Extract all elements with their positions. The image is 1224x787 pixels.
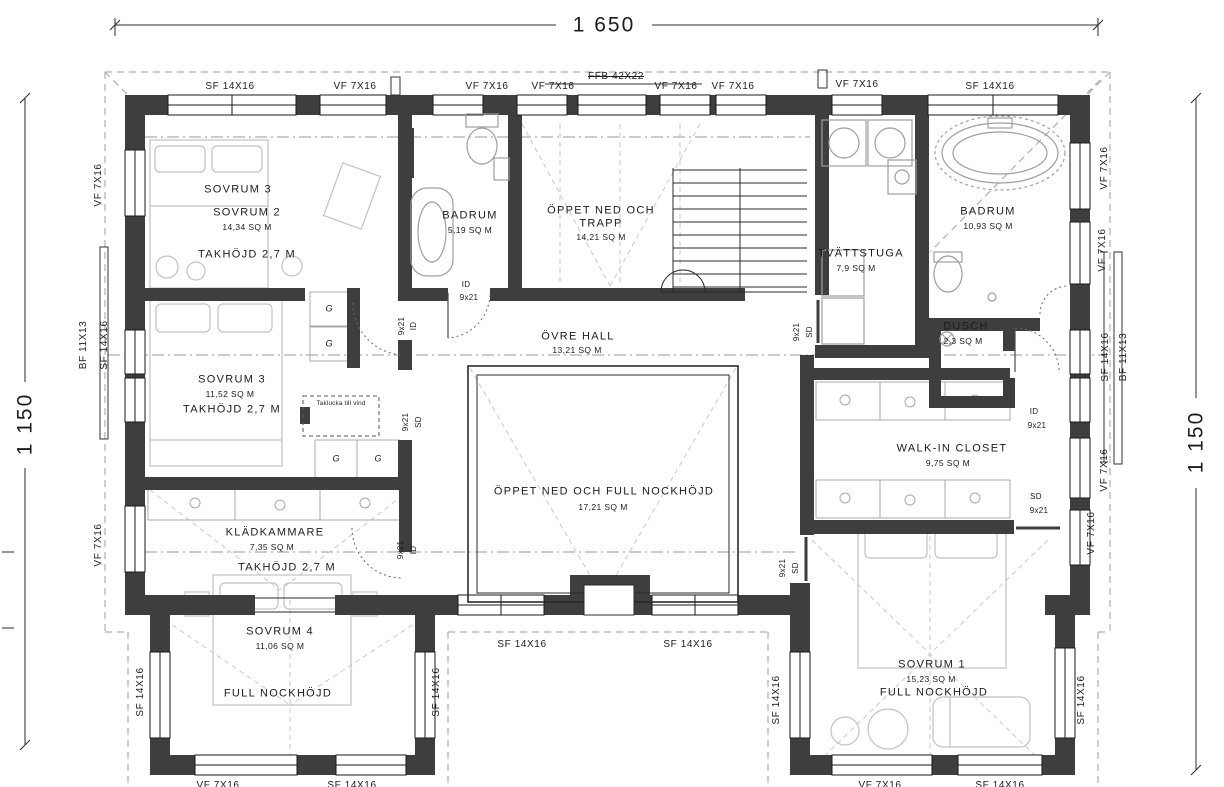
room-label-tvattstuga: TVÄTTSTUGA [818,249,904,260]
room-area-kladkammare: 7,35 SQ M [250,543,294,552]
window-label-vf: VF 7X16 [1100,146,1110,189]
door-label-id: ID [410,546,418,555]
room-area-trapp: 14,21 SQ M [576,233,625,242]
door-size: 9x21 [460,294,479,302]
room-label-walkin: WALK-IN CLOSET [897,444,1008,455]
room-area-walkin: 9,75 SQ M [926,459,970,468]
window-label-sf: SF 14X16 [1101,332,1111,381]
room-label-sovrum3: SOVRUM 3 [198,375,266,386]
room-area-oppet-ned: 17,21 SQ M [578,503,627,512]
window-label-vf: VF 7X16 [835,80,878,90]
door-size: 9x21 [397,541,405,560]
window-label-vf: VF 7X16 [94,523,104,566]
room-area-sovrum4: 11,06 SQ M [256,642,305,651]
room-area-badrum-right: 10,93 SQ M [963,222,1012,231]
room-ceiling-kladkammare: TAKHÖJD 2,7 M [238,563,336,574]
dimension-right: 1 150 [1186,411,1207,474]
window-label-vf: VF 7X16 [465,82,508,92]
room-label-trapp-1: ÖPPET NED OCH [547,206,655,217]
door-label-sd: SD [415,416,423,428]
window-label-sf: SF 14X16 [772,675,782,724]
door-label-sd: SD [1030,493,1042,501]
window-label-bf: BF 11X13 [1119,333,1129,382]
door-size: 9x21 [1028,422,1047,430]
door-size: 9x21 [1030,507,1049,515]
window-label-vf: VF 7X16 [196,781,239,787]
wardrobe-label-g: G [332,455,339,464]
door-label-id: ID [462,281,471,289]
dimension-left: 1 150 [15,393,36,456]
door-label-id: ID [410,322,418,331]
room-label-ovre-hall: ÖVRE HALL [541,332,614,343]
room-label-dusch: DUSCH [943,322,989,333]
door-label-sd: SD [806,326,814,338]
door-label-id: ID [1030,408,1039,416]
window-label-sf: SF 14X16 [205,82,254,92]
window-label-vf: VF 7X16 [1087,511,1097,554]
room-height-sovrum1: FULL NOCKHÖJD [880,688,988,699]
room-area-ovre-hall: 13,21 SQ M [552,346,601,355]
window-label-bf: BF 11X13 [79,321,89,370]
door-size: 9x21 [398,317,406,336]
window-label-sf: SF 14X16 [663,640,712,650]
room-label-badrum-right: BADRUM [960,207,1015,218]
window-label-sf: SF 14X16 [100,320,110,369]
dimension-lines [2,18,1201,775]
room-label-trapp-2: TRAPP [579,219,622,230]
room-area-sovrum1: 15,23 SQ M [906,675,955,684]
window-label-vf: VF 7X16 [1100,448,1110,491]
window-label-vf: VF 7X16 [94,163,104,206]
window-label-vf: VF 7X16 [711,82,754,92]
room-area-sovrum2: 14,34 SQ M [222,223,271,232]
door-size: 9x21 [793,323,801,342]
room-label-sovrum2-alt: SOVRUM 3 [204,185,272,196]
window-label-sf: SF 14X16 [136,667,146,716]
window-label-sf: SF 14X16 [965,82,1014,92]
window-label-sf: SF 14X16 [432,667,442,716]
room-area-badrum-left: 5,19 SQ M [448,226,492,235]
window-label-ffb: FFB 42X22 [588,72,644,82]
door-label-sd: SD [792,562,800,574]
door-size: 9x21 [779,559,787,578]
room-label-kladkammare: KLÄDKAMMARE [226,528,325,539]
staircase [661,168,807,292]
room-ceiling-sovrum2: TAKHÖJD 2,7 M [198,250,296,261]
room-label-oppet-ned: ÖPPET NED OCH FULL NOCKHÖJD [494,487,714,498]
room-area-sovrum3: 11,52 SQ M [206,390,255,399]
room-label-sovrum1: SOVRUM 1 [898,660,966,671]
room-label-sovrum4: SOVRUM 4 [246,627,314,638]
window-label-vf: VF 7X16 [654,82,697,92]
window-label-vf: VF 7X16 [531,82,574,92]
room-label-sovrum2: SOVRUM 2 [213,208,281,219]
wardrobe-label-g: G [374,455,381,464]
window-label-sf: SF 14X16 [975,781,1024,787]
window-label-sf: SF 14X16 [327,781,376,787]
window-label-vf: VF 7X16 [858,781,901,787]
room-height-sovrum4: FULL NOCKHÖJD [224,689,332,700]
floor-plan: 1 650 1 150 1 150 SF 14X16 VF 7X16 VF 7X… [0,0,1224,787]
wardrobe-label-g: G [325,305,332,314]
floor-plan-drawing [0,0,1224,787]
roof-overhang-outline [105,72,1110,787]
room-ceiling-sovrum3: TAKHÖJD 2,7 M [183,405,281,416]
door-size: 9x21 [402,413,410,432]
dimension-top: 1 650 [573,15,636,36]
window-label-sf: SF 14X16 [497,640,546,650]
room-area-dusch: 2,3 SQ M [943,337,982,346]
attic-hatch-label: Taklucka till vind [316,401,365,407]
wardrobe-label-g: G [325,340,332,349]
room-area-tvattstuga: 7,9 SQ M [836,264,875,273]
window-label-vf: VF 7X16 [1098,228,1108,271]
window-label-vf: VF 7X16 [333,82,376,92]
window-label-sf: SF 14X16 [1077,675,1087,724]
room-label-badrum-left: BADRUM [442,211,497,222]
